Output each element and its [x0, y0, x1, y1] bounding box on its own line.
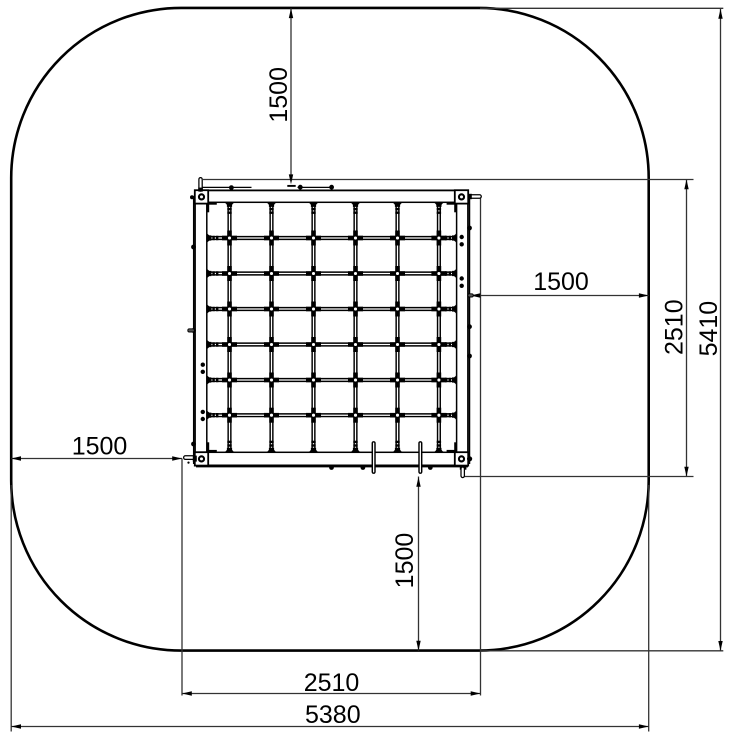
svg-text:5410: 5410 [695, 301, 723, 357]
svg-text:1500: 1500 [533, 268, 589, 296]
svg-text:2510: 2510 [304, 669, 360, 697]
svg-text:2510: 2510 [661, 299, 689, 355]
svg-text:1500: 1500 [72, 432, 128, 460]
svg-text:5380: 5380 [305, 701, 361, 729]
svg-text:1500: 1500 [391, 533, 419, 589]
svg-text:1500: 1500 [265, 67, 293, 123]
